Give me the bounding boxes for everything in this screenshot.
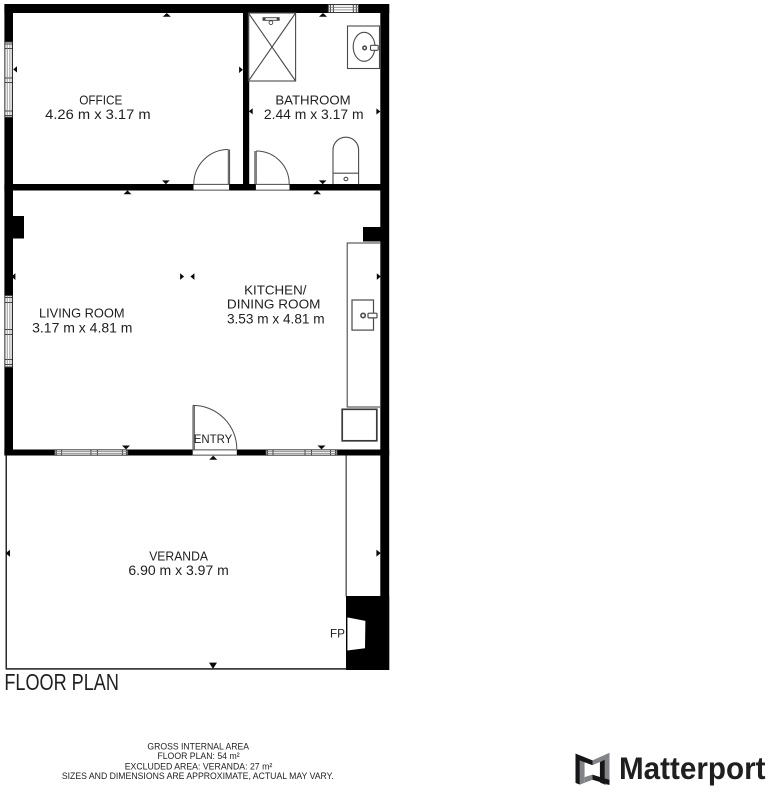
svg-text:3.53 m x 4.81 m: 3.53 m x 4.81 m <box>227 311 325 327</box>
svg-text:Matterport: Matterport <box>619 750 766 786</box>
svg-text:4.26 m x 3.17 m: 4.26 m x 3.17 m <box>45 106 151 122</box>
svg-text:LIVING ROOM: LIVING ROOM <box>39 306 125 321</box>
svg-text:FLOOR PLAN: 54 m²: FLOOR PLAN: 54 m² <box>157 751 239 762</box>
svg-text:FP: FP <box>330 627 345 641</box>
svg-text:KITCHEN/: KITCHEN/ <box>244 283 307 298</box>
svg-text:FLOOR PLAN: FLOOR PLAN <box>4 669 119 695</box>
svg-text:3.17 m x 4.81 m: 3.17 m x 4.81 m <box>32 320 132 336</box>
svg-text:2.44 m x 3.17 m: 2.44 m x 3.17 m <box>264 106 364 122</box>
svg-text:SIZES AND DIMENSIONS ARE APPRO: SIZES AND DIMENSIONS ARE APPROXIMATE, AC… <box>62 771 334 782</box>
svg-text:6.90 m x 3.97 m: 6.90 m x 3.97 m <box>128 562 228 578</box>
svg-text:ENTRY: ENTRY <box>194 432 233 446</box>
svg-text:DINING ROOM: DINING ROOM <box>227 297 321 312</box>
